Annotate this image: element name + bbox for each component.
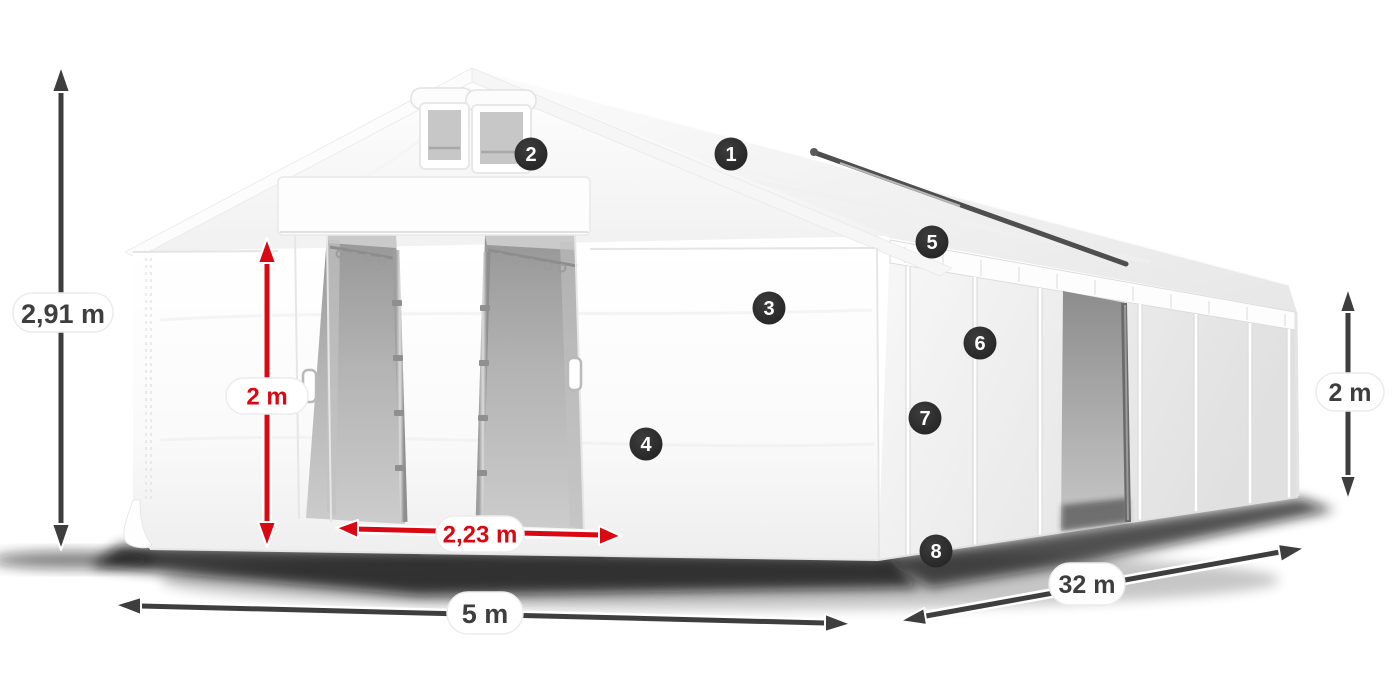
badge-number: 3 [763,298,774,320]
badge-number: 8 [930,541,941,563]
arrowhead-left-icon [115,597,141,615]
tent-illustration: 2,91 m 2 m 2,23 m 5 m [0,0,1400,700]
entrance-width-label: 2,23 m [443,522,518,549]
arrowhead-down-icon [52,524,70,550]
entrance-header-panel [278,177,590,235]
side-wall-height-label: 2 m [1328,379,1371,407]
side-wall-far-edge [1296,312,1298,496]
arrowhead-up-icon [52,66,70,92]
badge-number: 5 [926,232,937,254]
badge-number: 4 [640,434,652,456]
badge-number: 7 [919,408,930,430]
side-wall-height-dimension-arrow: 2 m [1316,288,1384,500]
feature-badge-3[interactable]: 3 [753,292,786,325]
feature-badge-5[interactable]: 5 [916,226,949,259]
feature-badge-7[interactable]: 7 [909,402,942,435]
feature-badge-8[interactable]: 8 [920,535,953,568]
badge-number: 2 [525,144,536,166]
tent-dimension-diagram: 2,91 m 2 m 2,23 m 5 m [0,0,1400,700]
door-handle [568,358,581,390]
arrowhead-right-icon [825,614,851,632]
total-height-dimension-arrow: 2,91 m [13,66,113,550]
feature-badge-1[interactable]: 1 [715,138,748,171]
badge-number: 1 [725,144,736,166]
arrowhead-right-icon [1278,544,1305,562]
arrowhead-up-icon [1340,288,1356,312]
tent-body [124,68,1298,560]
arrowhead-down-icon [1340,476,1356,500]
feature-badge-6[interactable]: 6 [964,327,997,360]
tent-width-label: 5 m [462,599,509,629]
vent-glass [428,110,461,160]
entrance-height-label: 2 m [246,384,287,411]
feature-badge-4[interactable]: 4 [630,428,663,461]
side-door-opening [1061,291,1129,531]
tent-length-label: 32 m [1059,571,1116,599]
badge-number: 6 [974,333,985,355]
feature-badge-2[interactable]: 2 [515,138,548,171]
arrowhead-left-icon [900,608,927,625]
total-height-label: 2,91 m [21,299,105,329]
roof-rail-end-fitting [810,148,818,156]
